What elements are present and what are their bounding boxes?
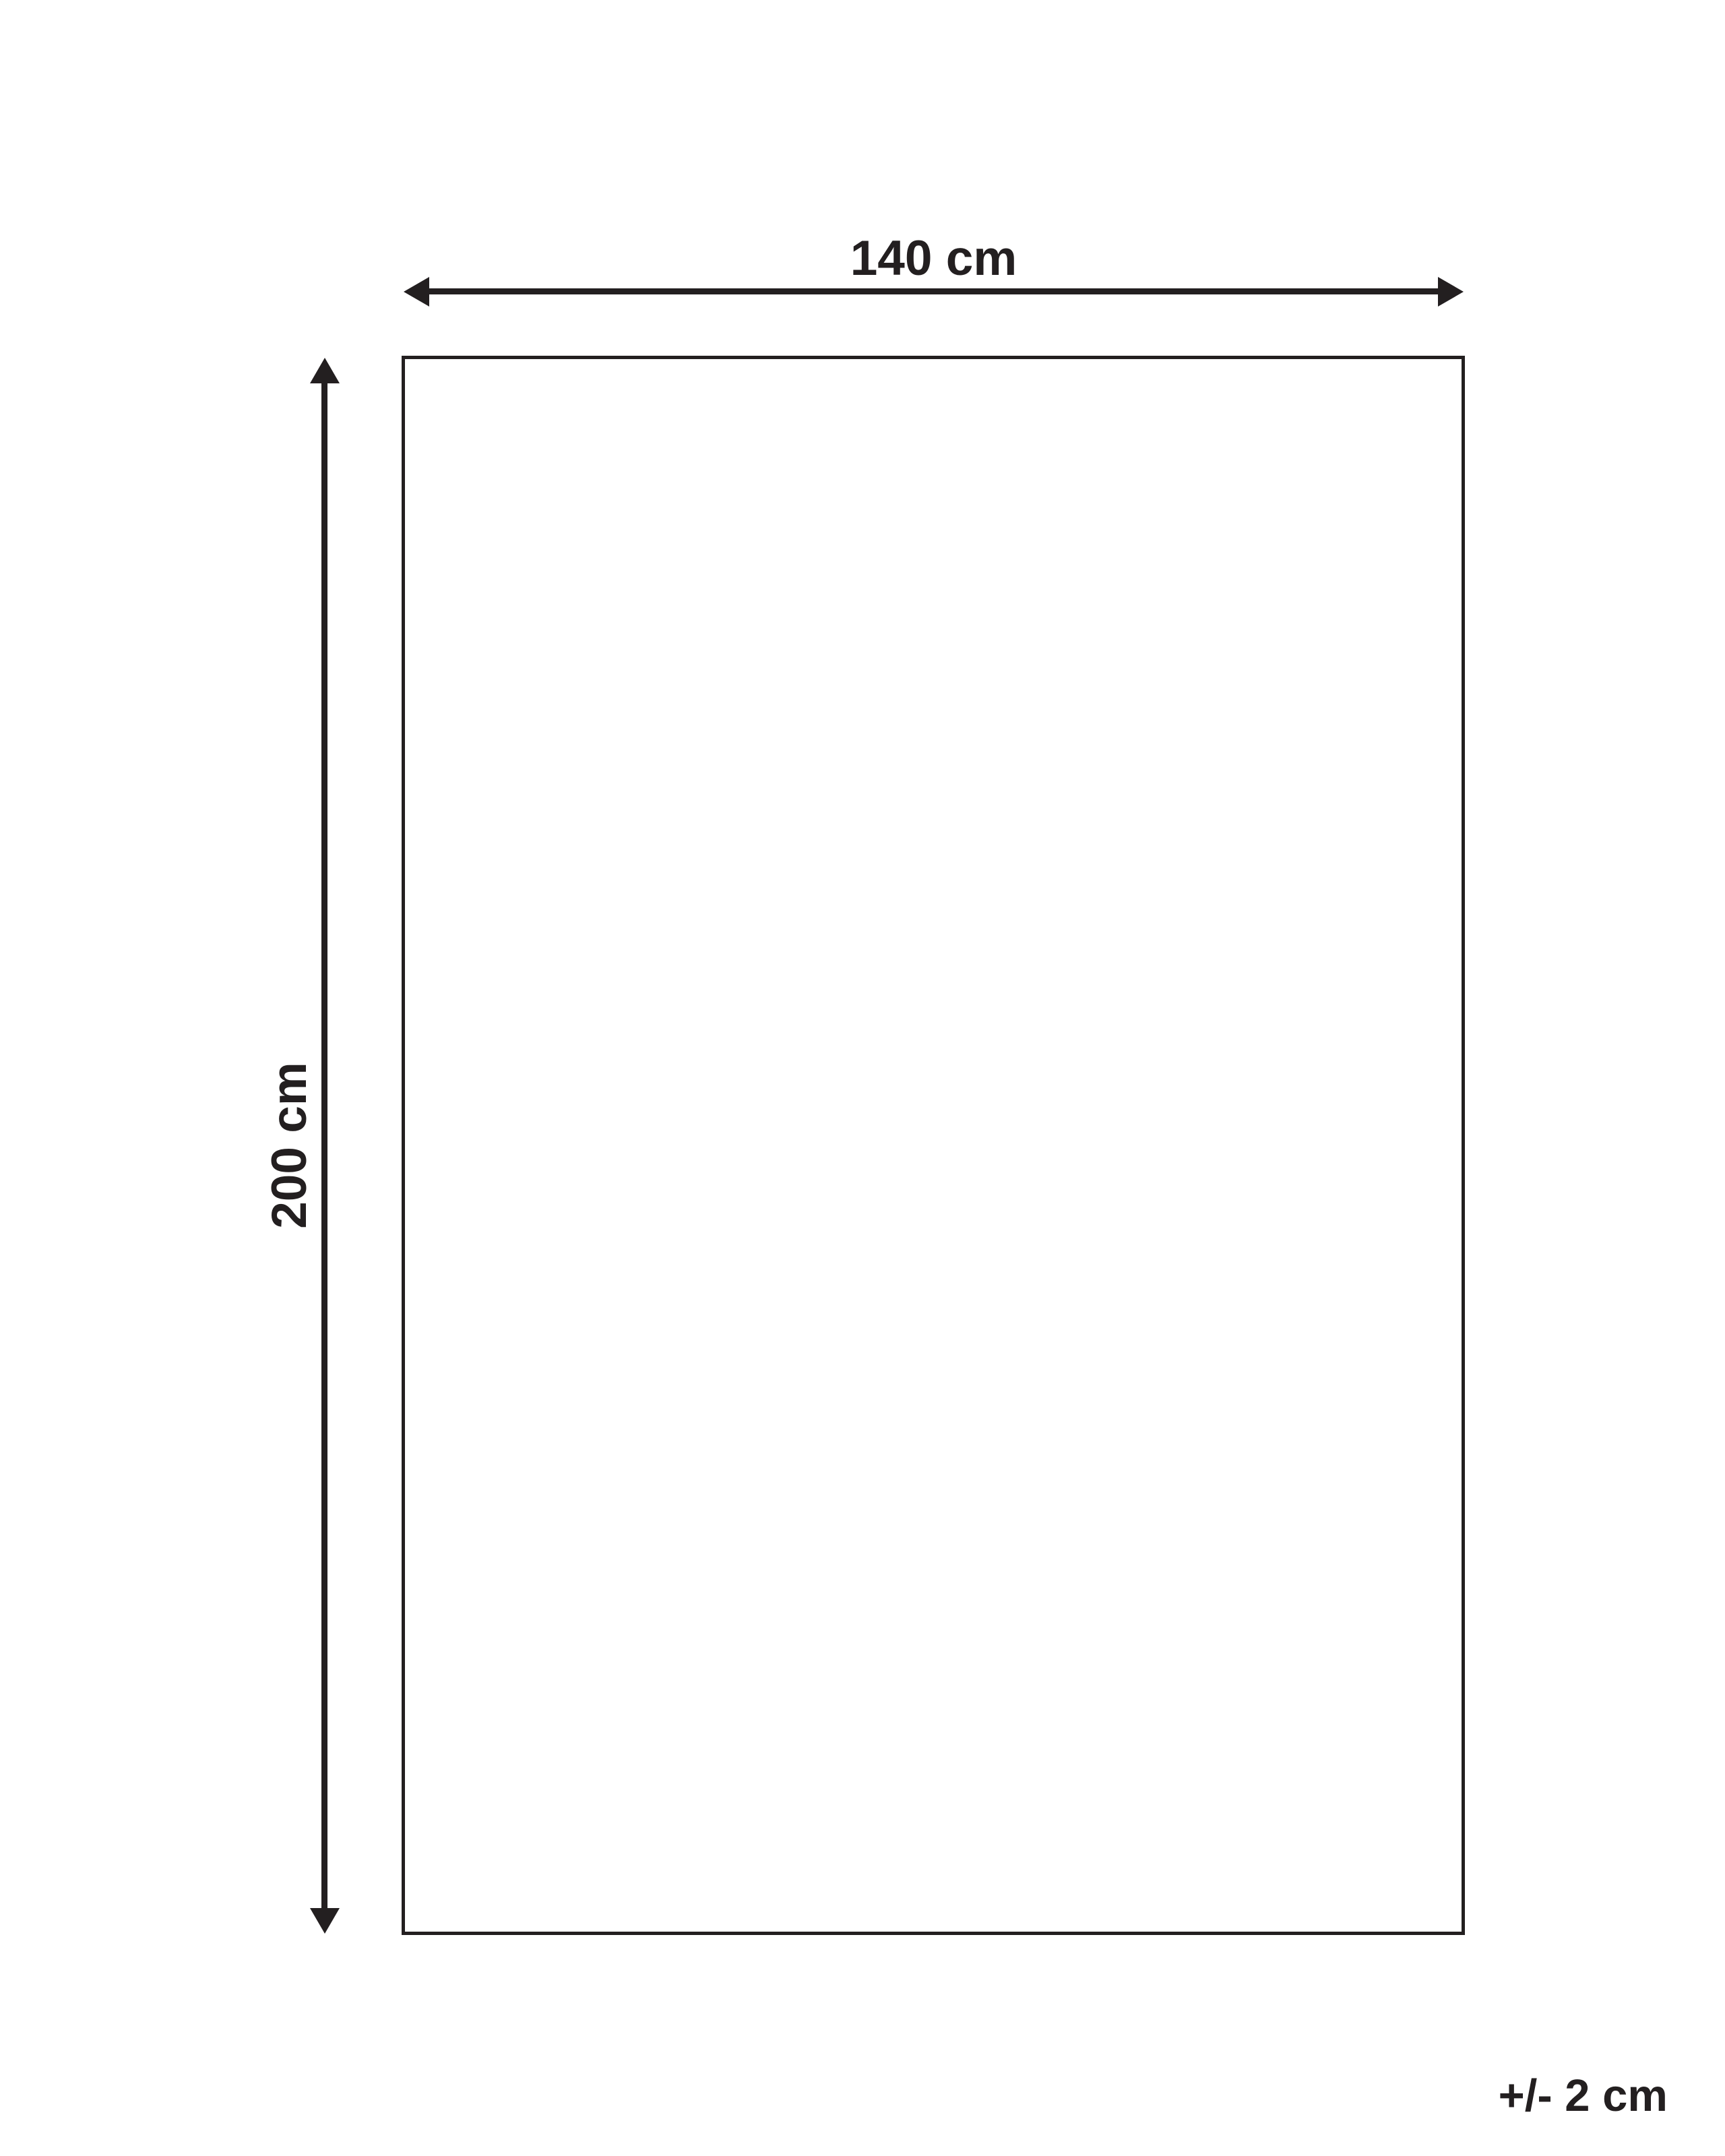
height-arrow-shaft <box>321 378 327 1913</box>
arrow-down-head-icon <box>310 1908 340 1934</box>
tolerance-label: +/- 2 cm <box>1499 2072 1668 2120</box>
width-label: 140 cm <box>404 232 1464 285</box>
dimension-diagram: 140 cm 200 cm +/- 2 cm <box>0 0 1725 2156</box>
width-arrow-shaft <box>424 288 1443 294</box>
height-label: 200 cm <box>263 1062 316 1229</box>
product-outline <box>402 356 1465 1935</box>
